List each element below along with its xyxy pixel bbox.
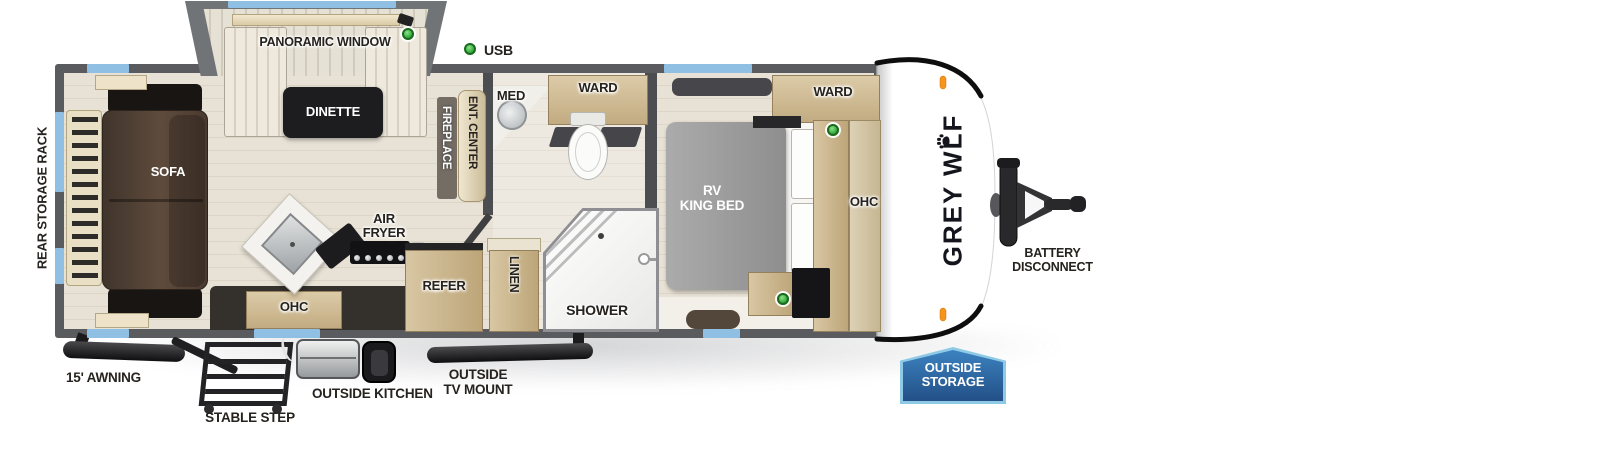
rack-slats [72, 117, 98, 281]
air-fryer-label: AIR FRYER [352, 212, 416, 240]
bed-ohc-label: OHC [844, 194, 884, 209]
propane-tank [362, 341, 396, 383]
outside-storage-label: OUTSIDE STORAGE [900, 361, 1006, 389]
linen-label: LINEN [507, 256, 521, 328]
griddle-seam [300, 357, 356, 359]
stove-knob [387, 255, 393, 261]
awning-roll [63, 341, 186, 362]
window-bedroom-bottom [703, 329, 740, 338]
shower-label: SHOWER [552, 302, 642, 318]
sofa-tray-bottom [95, 313, 149, 328]
headboard-shelf [672, 78, 772, 96]
stove-knob [398, 255, 404, 261]
sofa [102, 110, 208, 290]
entry-door [254, 329, 320, 338]
window-rear-upper [55, 112, 64, 192]
battery-disconnect-label: BATTERY DISCONNECT [1000, 246, 1105, 274]
dinette-label: DINETTE [283, 104, 383, 119]
front-cap-body [877, 61, 995, 339]
window-top-left [87, 64, 129, 73]
stable-step-label: STABLE STEP [200, 410, 300, 425]
window-bottom-left [87, 329, 129, 338]
floorplan: DINETTE PANORAMIC WINDOW USB REAR STORAG… [0, 0, 1600, 452]
hitch-arm [1045, 199, 1073, 210]
tongue-jack [1000, 162, 1017, 246]
paw-print-icon [938, 134, 950, 148]
king-bed-label: RV KING BED [676, 184, 748, 213]
refer-label: REFER [409, 278, 479, 293]
usb-dot-bedroom-top [827, 124, 839, 136]
usb-dot-bedroom-side [777, 293, 789, 305]
brand-logo-text: GREY WLF [938, 114, 969, 267]
step-bar [206, 374, 285, 379]
toilet-seat [575, 132, 601, 172]
stable-step-frame [199, 342, 294, 406]
outside-griddle [296, 339, 360, 379]
panoramic-window-label: PANORAMIC WINDOW [250, 35, 400, 49]
awning-label: 15' AWNING [66, 370, 141, 385]
step-bar [205, 389, 284, 394]
usb-legend-label: USB [484, 42, 513, 58]
rear-storage-rack [66, 110, 102, 286]
ent-center-label: ENT. CENTER [466, 96, 478, 198]
jack-cap [997, 158, 1020, 168]
shower-drain [598, 233, 604, 239]
fireplace-label: FIREPLACE [440, 106, 452, 198]
bedroom-tv [792, 268, 830, 318]
usb-legend-dot [464, 43, 476, 55]
stove-knob [365, 255, 371, 261]
tank-highlight [371, 350, 388, 376]
outside-kitchen-label: OUTSIDE KITCHEN [312, 386, 433, 401]
outside-tv-mount-label: OUTSIDE TV MOUNT [432, 368, 524, 397]
sofa-tray-top [95, 75, 147, 90]
sofa-label: SOFA [138, 164, 198, 179]
sofa-back-cushions [169, 115, 205, 287]
med-label: MED [486, 88, 536, 103]
rear-storage-rack-label: REAR STORAGE RACK [35, 127, 50, 269]
hitch-coupler [1070, 196, 1086, 212]
stove-cooktop [350, 241, 410, 264]
toilet-bowl [568, 124, 608, 180]
front-cap-and-hitch [865, 50, 1115, 350]
window-bedroom-top [664, 64, 752, 73]
bedroom-step [686, 310, 740, 329]
sink-drain [290, 242, 295, 247]
med-sink-basin [497, 100, 527, 130]
clearance-light-top [940, 76, 946, 89]
ward-underside [753, 116, 801, 128]
usb-dot-dinette [402, 28, 414, 40]
bed-ohc-side [849, 120, 881, 332]
window-valance [232, 14, 400, 26]
kitchen-ohc-label: OHC [264, 299, 324, 314]
panoramic-window-glass [228, 1, 396, 8]
window-rear-lower [55, 248, 64, 284]
shower-faucet [638, 253, 650, 265]
bed-ward-label: WARD [793, 84, 873, 99]
stove-knob [376, 255, 382, 261]
bath-ward-label: WARD [558, 80, 638, 95]
stove-knob [354, 255, 360, 261]
step-bar [208, 359, 287, 364]
clearance-light-bottom [940, 308, 946, 321]
